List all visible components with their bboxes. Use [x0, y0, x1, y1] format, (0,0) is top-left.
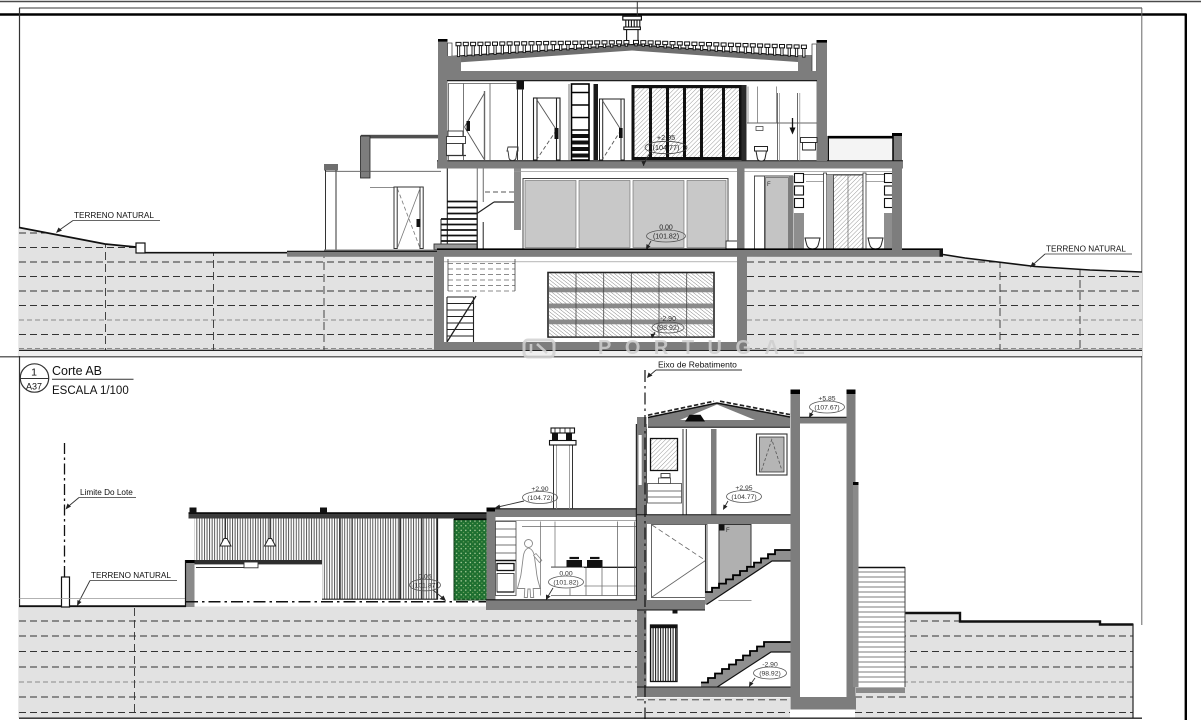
- svg-text:(104.77): (104.77): [653, 143, 680, 152]
- svg-text:F: F: [767, 182, 771, 188]
- svg-text:(98.92): (98.92): [759, 671, 781, 678]
- svg-text:TERRENO NATURAL: TERRENO NATURAL: [1046, 245, 1126, 254]
- svg-text:Corte AB: Corte AB: [52, 364, 102, 378]
- svg-text:(101.82): (101.82): [653, 234, 679, 241]
- svg-text:Limite Do Lote: Limite Do Lote: [80, 488, 133, 497]
- svg-text:(107.67): (107.67): [814, 405, 839, 412]
- svg-text:Eixo de Rebatimento: Eixo de Rebatimento: [658, 360, 737, 370]
- svg-text:ESCALA 1/100: ESCALA 1/100: [52, 385, 129, 397]
- svg-text:F: F: [726, 528, 730, 534]
- svg-text:A37: A37: [26, 382, 42, 392]
- svg-text:(98.92): (98.92): [657, 325, 679, 332]
- svg-text:PORTUGAL: PORTUGAL: [598, 337, 818, 359]
- svg-text:(101.82): (101.82): [553, 580, 578, 587]
- svg-text:(101.87): (101.87): [412, 583, 437, 590]
- svg-text:TERRENO NATURAL: TERRENO NATURAL: [74, 211, 154, 220]
- svg-text:(104.77): (104.77): [731, 494, 756, 501]
- svg-text:TERRENO NATURAL: TERRENO NATURAL: [91, 571, 171, 580]
- svg-text:(104.72): (104.72): [527, 495, 552, 502]
- svg-text:1: 1: [31, 367, 37, 379]
- svg-text:+2.95: +2.95: [657, 133, 675, 142]
